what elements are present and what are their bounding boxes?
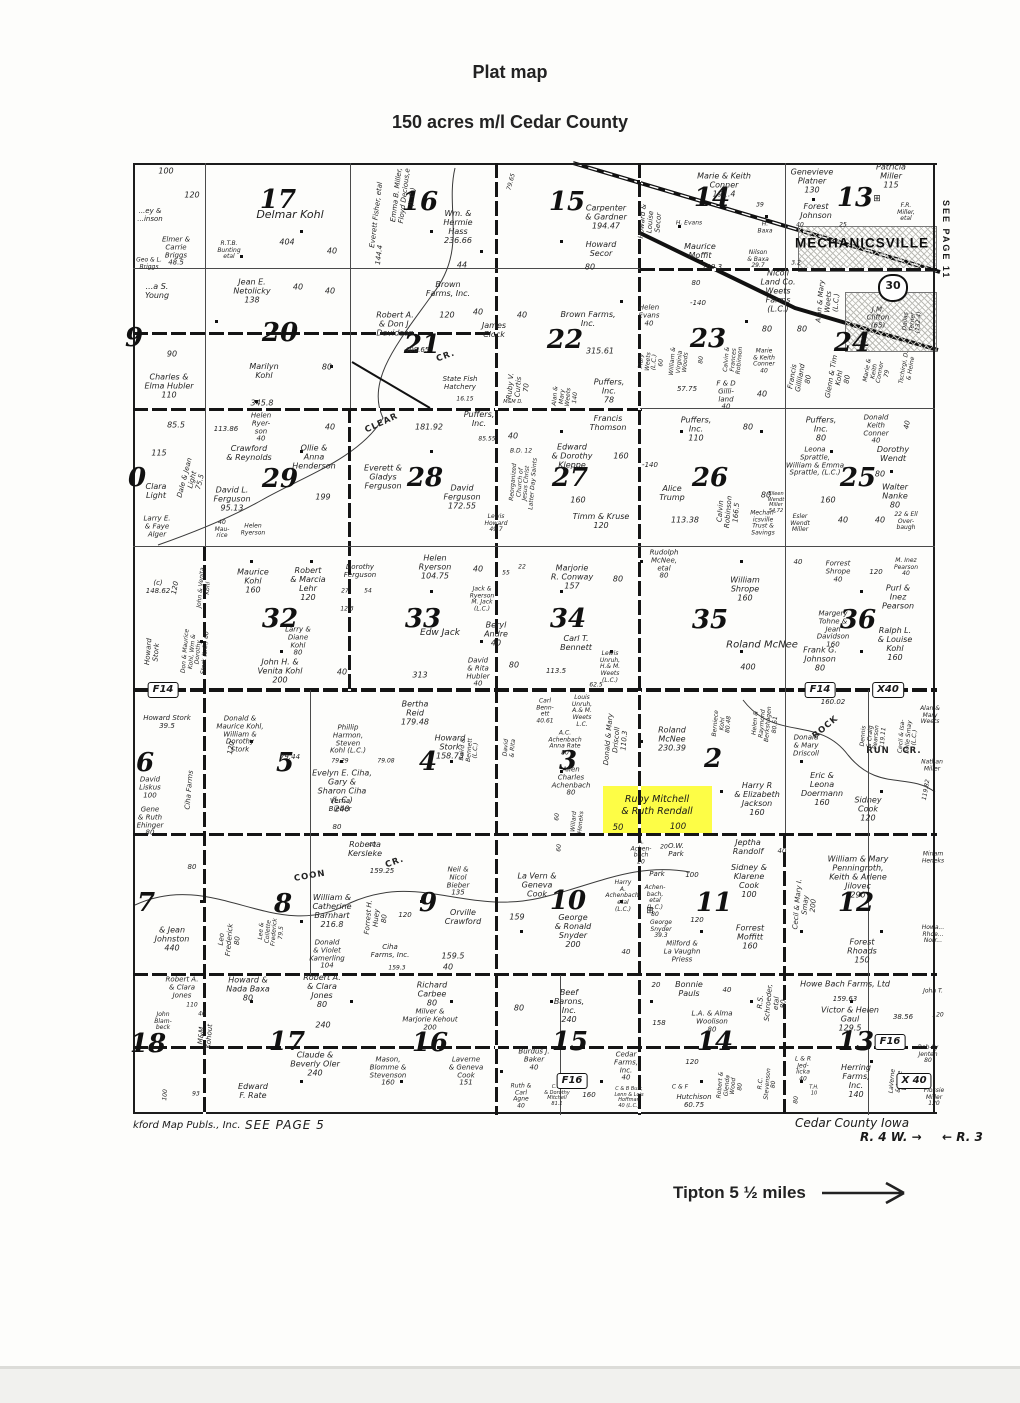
parcel-label: 313 [412,672,427,681]
parcel-label: -140 [642,462,658,470]
creek-label: CLEAR [364,412,400,436]
parcel-label: 16.15 [456,397,473,404]
farmstead-dot [620,300,623,303]
parcel-label: Helen Ryer- son 40 [251,412,271,443]
parcel-label: Ciha Farms [184,770,195,810]
farmstead-dot [310,560,313,563]
parcel-label: Carpenter & Gardner 194.47 [585,205,627,232]
parcel-label: 80 [692,280,701,288]
map-border-line [133,163,937,165]
parcel-label: Ruby V. Curtis 70 [506,373,532,401]
parcel-label: Milford & La Vaughn Priess [664,940,701,963]
parcel-label: 120 [184,192,199,201]
parcel-label: Beef Barons, Inc. 240 [554,989,584,1025]
parcel-label: 158 [652,1020,665,1028]
parcel-label: Jean E. Netolicky 138 [233,279,270,306]
section-number: 16 [402,187,438,217]
parcel-label: 120 [685,1059,698,1067]
map-border-line [933,163,935,1114]
parcel-label: Tschirgi, D. & Heine [899,351,918,386]
road-line [133,1046,937,1049]
parcel-label: 80 [875,471,885,480]
section-number: 6 [136,748,154,778]
parcel-label: Dorothy Wendt [877,446,909,464]
parcel-label: 38.56 [893,1014,913,1022]
farmstead-dot [890,470,893,473]
parcel-label: Alice Trump [659,485,685,503]
section-number: 36 [840,605,876,635]
publisher-credit: kford Map Publs., Inc. [133,1120,241,1131]
parcel-label: 40 [368,843,376,850]
parcel-label: 400 [740,664,755,673]
farmstead-dot [250,740,253,743]
range-east-label: ← R. 3 [942,1130,983,1144]
parcel-label: 404 [279,239,294,248]
section-number: 21 [404,330,440,360]
parcel-label: Charles & Elma Hubler 110 [144,374,193,401]
farmstead-dot [430,450,433,453]
parcel-label: Marie & Keith Conner 40 [753,349,775,376]
parcel-label: David & Rita Hubler 40 [466,657,489,688]
road-line [133,332,497,335]
parcel-label: Esler Wendt Miller [790,514,810,534]
parcel-label: F.R. Miller, etal [897,203,915,223]
farmstead-dot [200,640,203,643]
parcel-label: 115 [151,450,166,459]
parcel-label: Bonnie Pauls [675,981,703,999]
parcel-label: 39 [756,203,764,210]
farmstead-dot [678,225,681,228]
section-number: 10 [550,886,586,916]
range-west-arrow: → [912,1130,922,1144]
parcel-label: Roland McNee 230.39 [658,727,686,754]
parcel-label: Bertha Reid 179.48 [401,701,429,728]
parcel-label: Harry R & Elizabeth Jackson 160 [734,782,780,818]
parcel-label: Howard Secor [586,241,617,259]
farmstead-dot [650,1000,653,1003]
section-number: 26 [692,463,728,493]
parcel-label: 60 [556,844,563,852]
parcel-label: 85.5 [167,422,185,431]
parcel-label: Ollie & Anna Henderson [292,445,335,472]
creek-label: CR. [384,855,405,870]
parcel-label: Robert & Marcia Lehr 120 [290,567,325,603]
parcel-label: Timm & Kruse 120 [573,513,630,531]
parcel-label: Calvin Robinson 166.5 [716,495,742,529]
parcel-label: Mary Weets (L.C.) 60 [638,351,666,372]
section-boundary-line [640,408,935,409]
farmstead-dot [340,760,343,763]
parcel-label: William & Virginia Woods [669,347,692,377]
parcel-label: Lewis Unruh, H.& M. Weets (L.C.) [600,651,620,685]
road-badge: F16 [875,1034,906,1050]
parcel-label: Burdus J. Baker 40 [518,1048,549,1071]
parcel-label: 40 [473,566,483,575]
parcel-label: Don & Maurice Kohl, Wm & Dorothy Stork (… [181,629,212,676]
farmstead-dot [450,1000,453,1003]
road-line [133,408,643,411]
parcel-label: Evelyn E. Ciha, Gary & Sharon Ciha (L.C.… [312,770,372,815]
parcel-label: David L. Ferguson 95.13 [213,487,250,514]
parcel-label: 40 [325,424,335,433]
parcel-label: Howard Stork 158.73 [435,735,466,762]
road-badge: F14 [805,682,836,698]
parcel-label: Puffers, Inc. 80 [806,417,837,444]
farmstead-dot [600,1080,603,1083]
map-border-line [133,1112,937,1114]
parcel-label: 113.38 [671,517,699,526]
parcel-label: 159.25 [370,868,395,876]
parcel-label: Cedar Farms, Inc. 40 [614,1051,638,1082]
parcel-label: 85.55 [478,437,495,444]
parcel-label: Helen Evans 40 [639,304,660,327]
parcel-label: Hutchison 60.75 [676,1094,711,1110]
parcel-label: 120 [869,569,882,577]
parcel-label: Walter Nanke 80 [882,484,908,511]
parcel-label: Herring Farms, Inc. 140 [841,1064,871,1100]
parcel-label: 119.82 [922,779,932,801]
section-number: 2 [704,744,722,774]
parcel-label: 40 [794,559,803,567]
parcel-label: Carl Benn- ett 40.61 [536,699,554,726]
section-number: 18 [130,1029,166,1059]
parcel-label: Howard Stork 39.5 [143,715,191,731]
parcel-label: Robert A. & Clara Jones 80 [303,974,341,1010]
parcel-label: 100 [685,872,698,880]
parcel-label: 80 [333,824,342,832]
farmstead-dot [280,650,283,653]
section-number: 14 [694,183,730,213]
farmstead-dot [480,640,483,643]
parcel-label: 40 [622,949,631,957]
parcel-label: M. Inez Pearson 40 [894,558,918,578]
farmstead-dot [637,180,640,183]
parcel-label: Francis Gilliland 80 [787,362,815,394]
farmstead-dot [200,900,203,903]
parcel-label: Howe Bach Farms, Ltd [800,981,890,990]
parcel-label: 40 [473,309,483,318]
farmstead-dot [800,1080,803,1083]
scan-band-bottom [0,1369,1020,1403]
farmstead-dot [880,790,883,793]
parcel-label: 79.08 [377,759,394,766]
parcel-label: Helen Ryerson 104.75 [419,555,452,582]
parcel-label: 120 [690,917,703,925]
parcel-label: Marilyn Kohl [249,363,278,381]
farmstead-dot [560,590,563,593]
parcel-label: 199 [315,494,330,503]
section-number: 0 [128,463,146,493]
parcel-label: Cecil & Mary I. Smay 200 [792,879,820,932]
parcel-label: Glenn & Tim Kohl 80 [825,355,856,402]
parcel-label: Alan & Mary Weets [920,706,940,726]
farmstead-dot [300,230,303,233]
parcel-label: Elmer & Carrie Briggs 48.5 [162,236,190,267]
parcel-label: 40 [838,517,848,526]
parcel-label: Roberta Kersleke [348,841,382,859]
parcel-label: 110 [186,1003,197,1010]
parcel-label: 60 [554,813,561,821]
parcel-label: 93 [192,1092,200,1099]
road-badge: F16 [557,1073,588,1089]
parcel-label: R.C. Stevenson 80 [757,1067,780,1100]
road-line [783,833,786,1115]
section-number: 28 [407,463,443,493]
section-boundary-line [133,268,640,269]
farmstead-dot [640,740,643,743]
range-west-label: R. 4 W. → [860,1130,922,1144]
parcel-label: Forest Johnson [800,203,832,221]
farmstead-dot [520,930,523,933]
parcel-label: 144.4 [375,245,385,266]
farmstead-dot [740,650,743,653]
parcel-label: L & R Jed- licka 40 [795,1057,811,1084]
road-badge: X 40 [896,1073,931,1089]
parcel-label: James Clock [482,322,506,340]
farmstead-dot [812,198,815,201]
parcel-label: 20 [660,845,668,852]
road-line [348,408,351,691]
section-number: 20 [262,318,298,348]
parcel-label: 100 [158,168,173,177]
section-number: 33 [405,604,441,634]
section-number: 24 [834,328,870,358]
parcel-label: 160 [820,497,835,506]
section-number: 15 [552,1027,588,1057]
highlighted-parcel-acres-left: 50 [613,823,624,833]
parcel-label: Forrest Shrope 40 [826,560,851,583]
farmstead-dot [850,1000,853,1003]
parcel-label: 80 [797,326,807,335]
parcel-label: 40 [325,288,335,297]
parcel-label: 120 [171,581,181,596]
parcel-label: 40 [517,312,527,321]
parcel-label: George & Ronald Snyder 200 [555,914,592,950]
parcel-label: Crawford & Reynolds [226,445,271,463]
parcel-label: Marie & Keith Conner 79 [863,358,894,386]
parcel-label: 40 Mau- rice [215,520,230,540]
town-label: MECHANICSVILLE [795,236,929,251]
parcel-label: 57.75 [677,386,697,394]
section-number: 34 [550,604,586,634]
section-number: 9 [125,323,143,353]
farmstead-dot [750,1000,753,1003]
farmstead-dot [800,930,803,933]
parcel-label: A. Achen- bach 20 [631,840,652,867]
parcel-label: Roland McNee [726,639,798,650]
parcel-label: William Shrope 160 [730,577,760,604]
parcel-label: Forrest H. Huey 80 [364,900,390,936]
section-number: 17 [269,1027,305,1057]
farmstead-dot [720,790,723,793]
scanned-plat-map-page: Plat map 150 acres m/l Cedar County MECH… [0,0,1020,1403]
parcel-label: 40 [757,391,767,400]
parcel-label: 80 [509,662,519,671]
parcel-label: 113.86 [214,426,239,434]
section-number: 8 [274,889,292,919]
see-page-bottom-note: SEE PAGE 5 [245,1118,325,1132]
parcel-label: 240 [315,1022,330,1031]
parcel-label: Sidney & Klarene Cook 100 [731,864,767,900]
parcel-label: Puffers, Inc. [464,411,495,429]
section-number: 14 [697,1027,733,1057]
parcel-label: 80 [514,1005,524,1014]
section-number: 29 [262,464,298,494]
parcel-label: 159.5 [442,953,465,962]
parcel-label: 54 [364,589,372,596]
section-number: 9 [419,888,437,918]
farmstead-dot [860,650,863,653]
parcel-label: 80 [793,1096,800,1104]
farmstead-dot [610,650,613,653]
us-highway-30-shield: 30 [878,274,908,302]
parcel-label: Leo Frederick 80 [217,923,243,958]
parcel-label: Berniece Kohl 80.48 [712,710,734,738]
parcel-label: Nicoll Land Co. Weets Farms (L.C.) [760,270,795,315]
coon-creek [135,870,690,916]
parcel-label: R.T.B. Bunting etal [217,241,240,261]
parcel-label: 40 [337,669,347,678]
parcel-label: 159.3 [388,966,405,973]
parcel-label: 20 [652,982,661,990]
parcel-label: 113.5 [546,668,566,676]
parcel-label: Leona Sprattle, William & Emma Sprattle,… [786,446,844,477]
tipton-text: Tipton 5 ½ miles [673,1183,806,1203]
parcel-label: 80 [761,492,771,501]
parcel-label: Marjorie R. Conway 157 [551,565,593,592]
section-number: 22 [547,325,583,355]
parcel-label: 40 [903,420,912,430]
parcel-label: H. Baxa [757,221,772,234]
section-boundary-line [205,163,206,546]
parcel-label: 90 [167,351,177,360]
road-line [133,833,937,836]
schoolhouse-icon: ⊞ [646,906,654,916]
parcel-label: 80 [188,864,197,872]
parcel-label: Donald & Mary Driscoll 110.3 [603,713,631,767]
parcel-label: Nathan Miller [921,759,943,772]
parcel-label: -140 [690,300,706,308]
schoolhouse-icon: ⊞ [873,194,881,204]
farmstead-dot [800,760,803,763]
parcel-label: State Fish Hatchery [443,376,478,392]
section-number: 25 [840,463,876,493]
parcel-label: Donald Keith Conner 40 [863,414,888,445]
farmstead-dot [740,560,743,563]
parcel-label: 160 [613,453,628,462]
parcel-label: Wm. & Hermie Hass 236.66 [443,210,472,246]
farmstead-dot [620,900,623,903]
parcel-label: Genevieve Platner 130 [791,169,834,196]
parcel-label: 160.02 [821,699,846,707]
parcel-label: Alan & Mary Weets 140 [552,386,581,408]
farmstead-dot [765,215,768,218]
parcel-label: 22 [518,565,526,572]
farmstead-dot [700,930,703,933]
farmstead-dot [560,430,563,433]
parcel-label: 100 [162,1089,170,1101]
farmstead-dot [700,1080,703,1083]
parcel-label: Ruth & Carl Agne 40 [511,1084,532,1111]
parcel-label: Verna Bieber [329,798,352,814]
farmstead-dot [300,920,303,923]
section-number: 27 [552,463,588,493]
parcel-label: 22 & Ell Over- baugh [894,512,917,532]
parcel-label: David Liskus 100 [139,776,161,799]
farmstead-dot [430,230,433,233]
parcel-label: 80 [613,576,623,585]
section-number: 4 [419,747,437,777]
road-line [495,688,498,1115]
parcel-label: Eileen Wendt Miller 54.72 [768,492,784,514]
parcel-label: Park [649,871,664,879]
road-line [203,546,206,1115]
road-line [133,973,937,976]
parcel-label: Edward F. Rate [238,1083,268,1101]
parcel-label: Patricia Miller 115 [876,164,906,191]
parcel-label: Lee & Collette Frederick 79.5 [257,917,286,947]
parcel-label: Mechan- icsville Trust & Savings [750,511,776,538]
parcel-label: Rudolph McNee, etal 80 [650,549,679,580]
parcel-label: T.H. 10 [809,1085,818,1096]
farmstead-dot [240,255,243,258]
parcel-label: 159.63 [833,996,858,1004]
parcel-label: David & Rita [503,738,518,758]
section-number: 23 [690,324,726,354]
farmstead-dot [760,430,763,433]
parcel-label: Francis Thomson [590,415,627,433]
county-label: Cedar County Iowa [795,1116,909,1130]
section-number: 3 [559,746,577,776]
section-number: 15 [549,187,585,217]
parcel-label: 40 [508,433,518,442]
parcel-label: Frank G. Johnson 80 [803,647,837,674]
parcel-label: Howard Stork [144,638,162,666]
parcel-label: 40 [443,964,453,973]
section-number: 11 [696,888,732,918]
parcel-label: Puffers, Inc. 110 [681,417,712,444]
parcel-label: 80 [698,356,705,364]
farmstead-dot [250,1000,253,1003]
parcel-label: 79.65 [507,173,518,191]
farmstead-dot [330,365,333,368]
creek-label: RUN [866,747,890,757]
parcel-label: Ciha Farms, Inc. [371,944,410,960]
parcel-label: Dennis & Craig Pearson 119.11 [860,724,889,750]
road-line [495,163,498,691]
parcel-label: 159 [509,914,524,923]
parcel-label: 315.61 [586,348,614,357]
farmstead-dot [550,1000,553,1003]
parcel-label: 44 [457,262,467,271]
range-east-arrow: ← [942,1130,952,1144]
farmstead-dot [350,1000,353,1003]
parcel-label: Laverne & Geneva Cook 151 [449,1056,484,1087]
parcel-label: John H. & Venita Kohl 200 [258,659,303,686]
section-number: 35 [692,605,728,635]
parcel-label: Donald & Mary Driscoll [793,734,819,757]
range-east-text: R. 3 [956,1130,983,1144]
parcel-label: M&M D. [503,400,523,406]
parcel-label: Reorganized Church of Jesus Christ Latte… [508,456,539,510]
parcel-label: Forest Rhoads 150 [847,939,877,966]
creek-label: ROCK [811,715,841,742]
section-number: 13 [837,183,873,213]
parcel-label: Larry E. & Faye Alger [144,515,171,538]
hatchery-lane [352,362,430,408]
parcel-label: Maurice Moffit [684,243,716,261]
parcel-label: Howard & Louise Secor [638,204,664,240]
